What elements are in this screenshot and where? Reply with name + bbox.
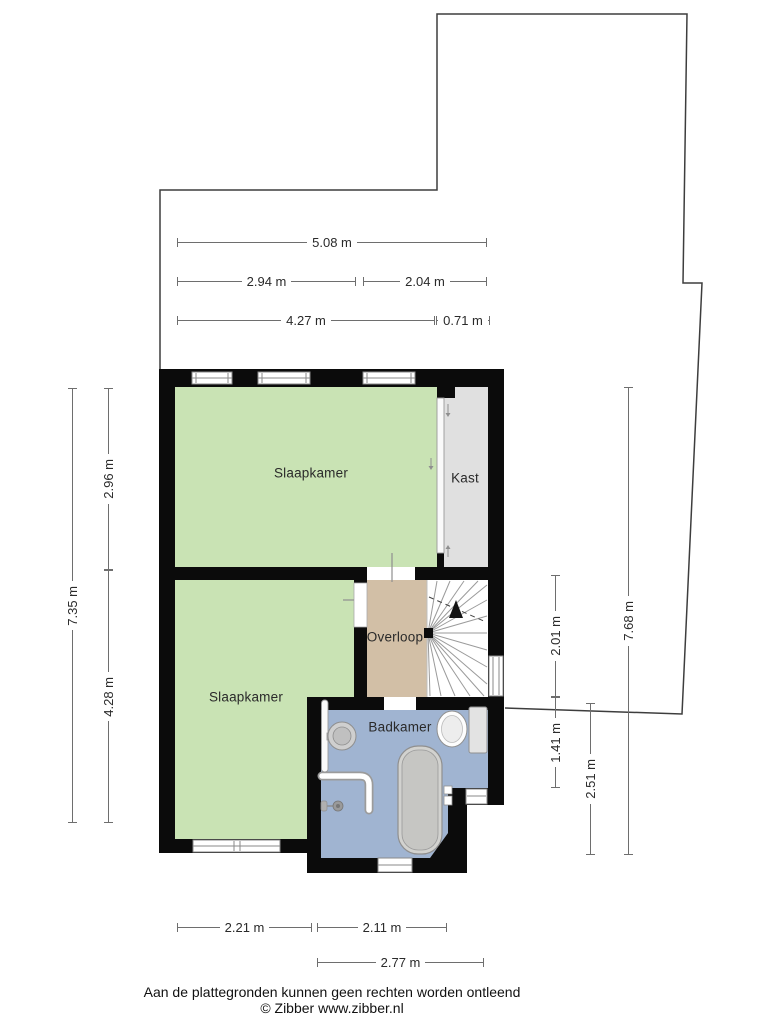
dim-bottom-left: 2.21 m	[177, 920, 312, 934]
footer-disclaimer: Aan de plattegronden kunnen geen rechten…	[144, 984, 521, 1000]
footer-copyright: © Zibber www.zibber.nl	[144, 1000, 521, 1016]
dim-left-lower: 4.28 m	[101, 570, 115, 823]
dim-left-total: 7.35 m	[65, 388, 79, 823]
room-label-overloop: Overloop	[367, 630, 423, 645]
floor-plan-drawing	[0, 0, 768, 1024]
footer: Aan de plattegronden kunnen geen rechten…	[144, 984, 521, 1016]
dim-right-lower: 2.51 m	[583, 703, 597, 855]
window-top-1	[192, 372, 232, 384]
door-opening-slaapkamer-bottom	[354, 583, 367, 627]
dim-top-right: 2.04 m	[363, 274, 487, 288]
window-top-2	[258, 372, 310, 384]
dim-right-upper: 2.01 m	[548, 575, 562, 697]
dim-right-middle: 1.41 m	[548, 697, 562, 788]
dim-bottom-total: 2.77 m	[317, 955, 484, 969]
window-top-3	[363, 372, 415, 384]
room-label-kast: Kast	[451, 471, 479, 486]
dim-bottom-right: 2.11 m	[317, 920, 447, 934]
room-label-slaapkamer-bottom: Slaapkamer	[209, 690, 283, 705]
room-label-slaapkamer-top: Slaapkamer	[274, 466, 348, 481]
floor-plan-page: Slaapkamer Kast Slaapkamer Overloop Badk…	[0, 0, 768, 1024]
dim-top-inner-right: 0.71 m	[436, 313, 490, 327]
window-stairwell-right	[489, 656, 503, 696]
dim-top-total: 5.08 m	[177, 235, 487, 249]
stairwell-area	[427, 580, 488, 697]
room-label-badkamer: Badkamer	[368, 720, 431, 735]
door-opening-badkamer	[384, 697, 416, 710]
dim-left-upper: 2.96 m	[101, 388, 115, 570]
stair-newel-post	[424, 628, 433, 638]
window-bathroom-right	[466, 789, 487, 804]
dim-top-inner-left: 4.27 m	[177, 313, 435, 327]
window-bedroom-bottom	[193, 840, 280, 852]
door-opening-slaapkamer-top	[367, 567, 415, 580]
window-bathroom-bottom	[378, 858, 412, 872]
sink-icon	[327, 722, 356, 750]
dim-top-left: 2.94 m	[177, 274, 356, 288]
sliding-door-kast	[437, 398, 444, 553]
dim-right-total: 7.68 m	[621, 387, 635, 855]
